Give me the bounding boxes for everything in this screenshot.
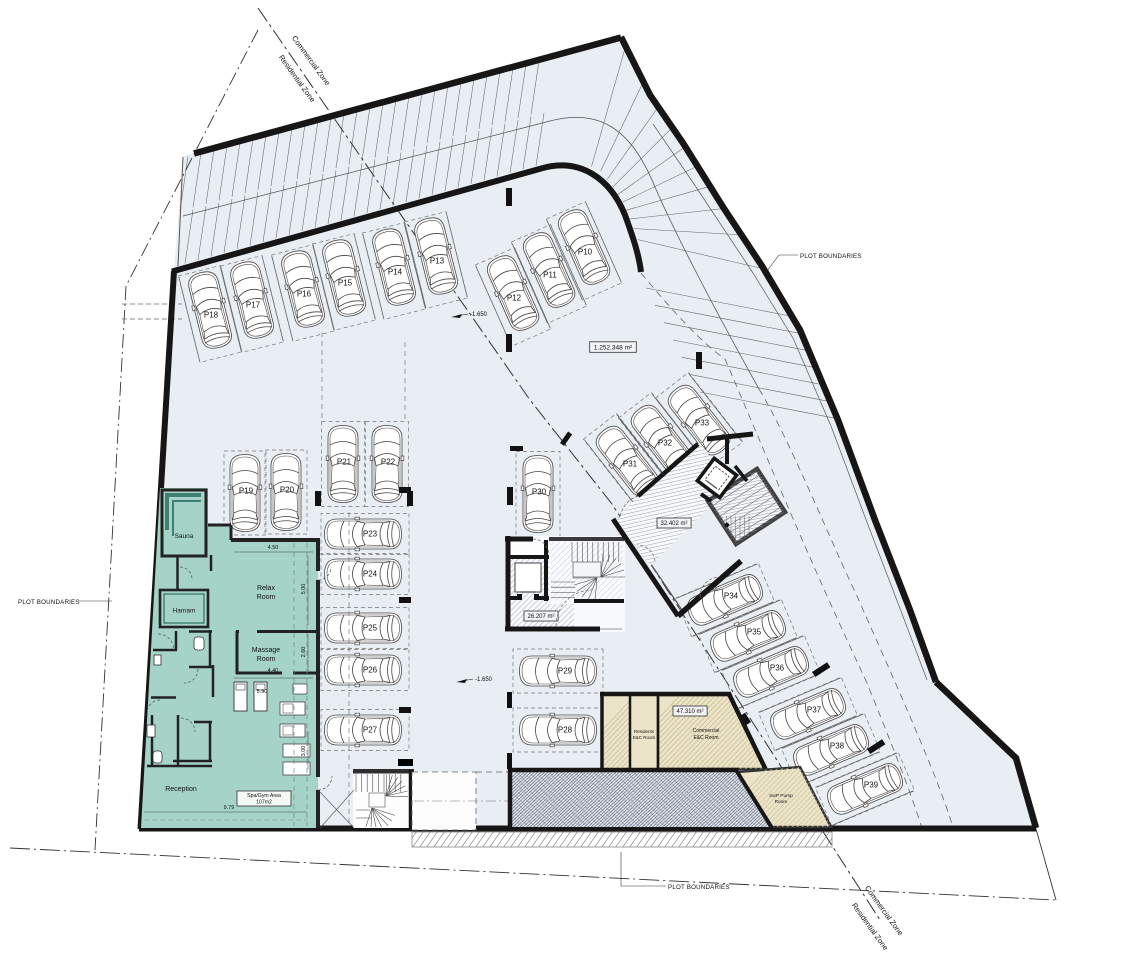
svg-text:Room: Room: [257, 656, 276, 663]
svg-text:P18: P18: [204, 311, 219, 320]
svg-text:Room: Room: [257, 594, 276, 601]
svg-text:P38: P38: [830, 742, 845, 751]
svg-text:P11: P11: [543, 271, 557, 280]
svg-text:P36: P36: [770, 664, 785, 673]
svg-text:32.402 m²: 32.402 m²: [660, 521, 687, 527]
svg-text:P27: P27: [363, 726, 378, 735]
svg-text:PLOT BOUNDARIES: PLOT BOUNDARIES: [668, 884, 730, 891]
svg-text:PLOT BOUNDARIES: PLOT BOUNDARIES: [18, 599, 80, 606]
svg-text:47.310 m²: 47.310 m²: [676, 709, 703, 715]
svg-text:P14: P14: [388, 268, 403, 277]
svg-text:E&C Room: E&C Room: [693, 735, 718, 741]
svg-text:-1.650: -1.650: [475, 677, 493, 683]
svg-text:Spa/Gym Area: Spa/Gym Area: [247, 793, 281, 799]
svg-text:1.252.348 m²: 1.252.348 m²: [594, 344, 633, 351]
svg-text:P10: P10: [578, 248, 593, 257]
svg-text:P34: P34: [724, 592, 739, 601]
svg-text:Massage: Massage: [252, 647, 281, 654]
svg-text:P29: P29: [558, 667, 573, 676]
svg-text:Relax: Relax: [257, 585, 275, 592]
svg-text:Reception: Reception: [165, 786, 197, 793]
svg-text:P31: P31: [623, 460, 638, 469]
svg-text:P32: P32: [658, 439, 673, 448]
svg-text:Sauna: Sauna: [175, 533, 194, 540]
svg-text:P20: P20: [280, 486, 295, 495]
svg-text:P30: P30: [532, 488, 547, 497]
svg-text:26.207 m²: 26.207 m²: [527, 614, 554, 620]
svg-text:5.00: 5.00: [301, 584, 307, 595]
svg-text:P24: P24: [363, 570, 378, 579]
svg-text:E&C Room: E&C Room: [633, 735, 656, 740]
svg-text:SwP Pump: SwP Pump: [769, 793, 793, 799]
svg-text:P33: P33: [695, 419, 710, 428]
svg-text:107m2: 107m2: [256, 800, 272, 806]
svg-text:P35: P35: [747, 628, 762, 637]
svg-text:5.90: 5.90: [257, 689, 268, 695]
svg-text:P17: P17: [246, 301, 261, 310]
svg-text:9.79: 9.79: [224, 805, 235, 811]
svg-text:P22: P22: [381, 458, 396, 467]
svg-text:P19: P19: [239, 487, 254, 496]
svg-text:3.00: 3.00: [301, 746, 307, 757]
svg-text:P26: P26: [363, 666, 378, 675]
svg-text:P25: P25: [363, 624, 378, 633]
svg-text:Room: Room: [775, 799, 788, 805]
svg-text:P15: P15: [338, 279, 353, 288]
svg-text:4.50: 4.50: [268, 545, 279, 551]
svg-text:P39: P39: [864, 781, 879, 790]
svg-text:Residents: Residents: [634, 729, 655, 734]
svg-text:-1.650: -1.650: [470, 312, 488, 318]
svg-text:P37: P37: [807, 706, 822, 715]
svg-text:4.40: 4.40: [268, 668, 279, 674]
svg-text:Hamam: Hamam: [173, 608, 196, 615]
svg-text:P13: P13: [430, 257, 445, 266]
svg-text:2.60: 2.60: [301, 647, 307, 658]
svg-text:P28: P28: [558, 726, 573, 735]
svg-text:PLOT BOUNDARIES: PLOT BOUNDARIES: [800, 253, 862, 260]
svg-text:P16: P16: [297, 290, 312, 299]
svg-text:P23: P23: [363, 530, 378, 539]
svg-text:Commercial: Commercial: [693, 728, 720, 734]
svg-text:P12: P12: [507, 294, 522, 303]
svg-text:P21: P21: [337, 458, 352, 467]
